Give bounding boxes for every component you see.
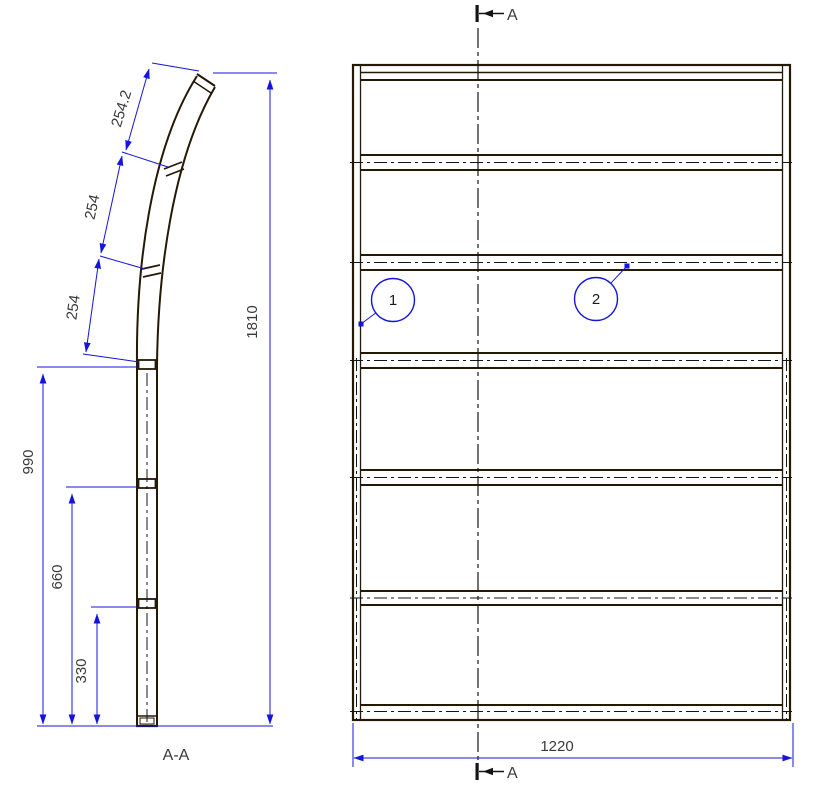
section-marker-bottom: A	[476, 763, 519, 782]
dim-254-a-label: 254	[82, 193, 104, 221]
curve-left-wall	[137, 76, 197, 365]
section-arrow-icon	[483, 10, 493, 17]
dim-990-label: 990	[20, 449, 37, 474]
section-marker-bar	[476, 5, 479, 22]
section-marker-top-label: A	[507, 7, 518, 24]
balloon-2: 2	[575, 264, 630, 321]
curve-right-wall	[157, 87, 215, 365]
curve-joint-2	[142, 265, 161, 277]
tip-cap-outer	[197, 74, 215, 86]
dim-1810-label: 1810	[244, 305, 261, 338]
dimension-254-2: 254.2	[108, 63, 199, 167]
rail-1	[350, 155, 792, 170]
section-marker-top: A	[476, 5, 519, 24]
rail-2	[350, 255, 792, 270]
dim-1220-label: 1220	[540, 738, 573, 755]
dim-254-b-label: 254	[63, 294, 83, 321]
rail-3	[350, 353, 792, 368]
section-view: 254.2 254 254 1810 990 66	[20, 63, 277, 764]
front-view: A A 1 2 1220	[350, 5, 793, 782]
technical-drawing: 254.2 254 254 1810 990 66	[0, 0, 824, 792]
section-arrow-icon	[483, 768, 493, 775]
drawing-canvas: 254.2 254 254 1810 990 66	[0, 0, 824, 792]
dimension-660: 660	[49, 487, 137, 724]
panel-outline	[353, 65, 790, 720]
section-marker-bar	[476, 763, 479, 780]
balloon-1: 1	[359, 279, 415, 327]
dim-660-label: 660	[49, 564, 66, 589]
rail-bottom	[350, 705, 792, 712]
balloon-2-number: 2	[592, 291, 600, 308]
balloon-1-number: 1	[389, 292, 397, 309]
dim-254-2-label: 254.2	[108, 88, 135, 129]
section-marker-bottom-label: A	[507, 765, 518, 782]
bar-joint-1	[139, 360, 156, 369]
section-view-label: A-A	[163, 747, 190, 764]
rail-5	[350, 591, 792, 605]
leader-attach-dot	[359, 322, 364, 327]
dimension-1810: 1810	[213, 73, 277, 724]
rail-4	[350, 470, 792, 485]
dimension-254-b: 254	[63, 259, 139, 362]
leader-attach-dot	[625, 264, 630, 269]
tip-cap-inner	[193, 81, 211, 93]
dimension-1220: 1220	[353, 723, 793, 767]
dim-330-label: 330	[73, 658, 90, 683]
dimension-330: 330	[73, 607, 137, 724]
dimension-254-a: 254	[82, 156, 145, 269]
